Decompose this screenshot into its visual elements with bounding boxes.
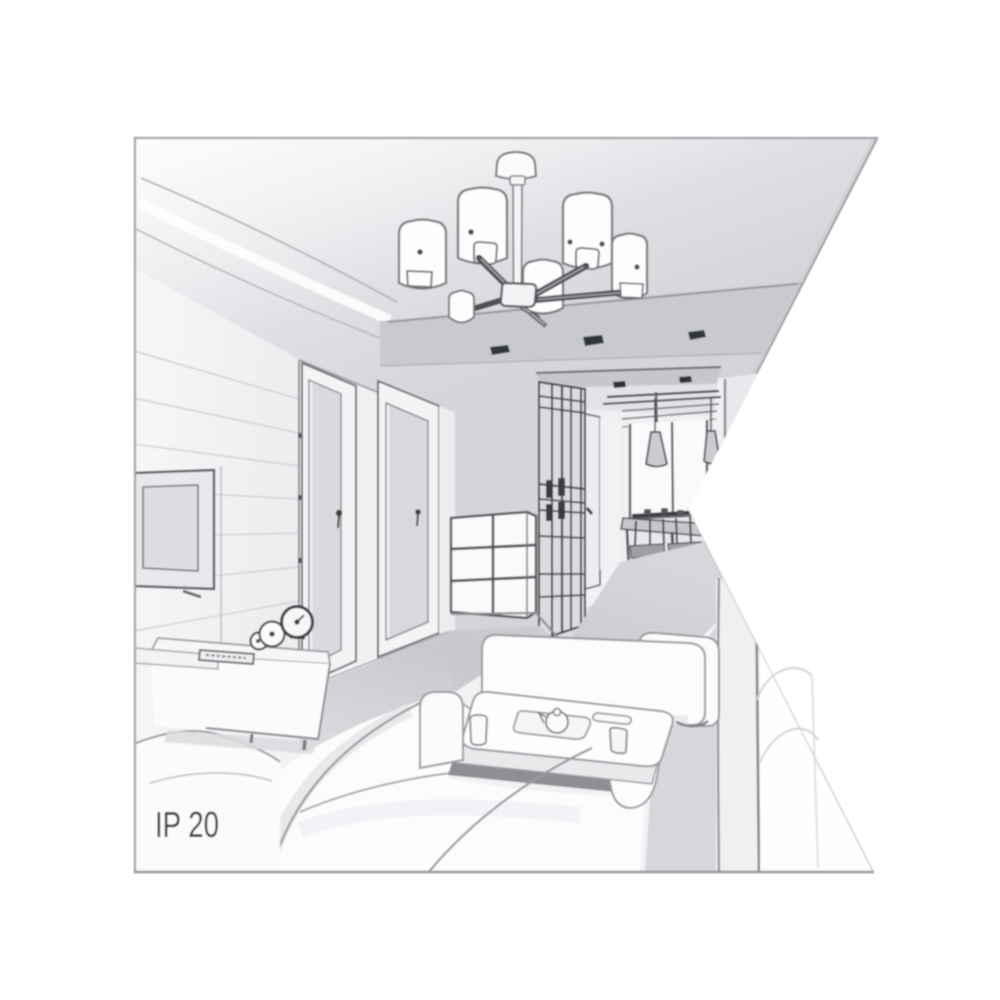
svg-text:IP 20: IP 20 <box>155 804 219 845</box>
